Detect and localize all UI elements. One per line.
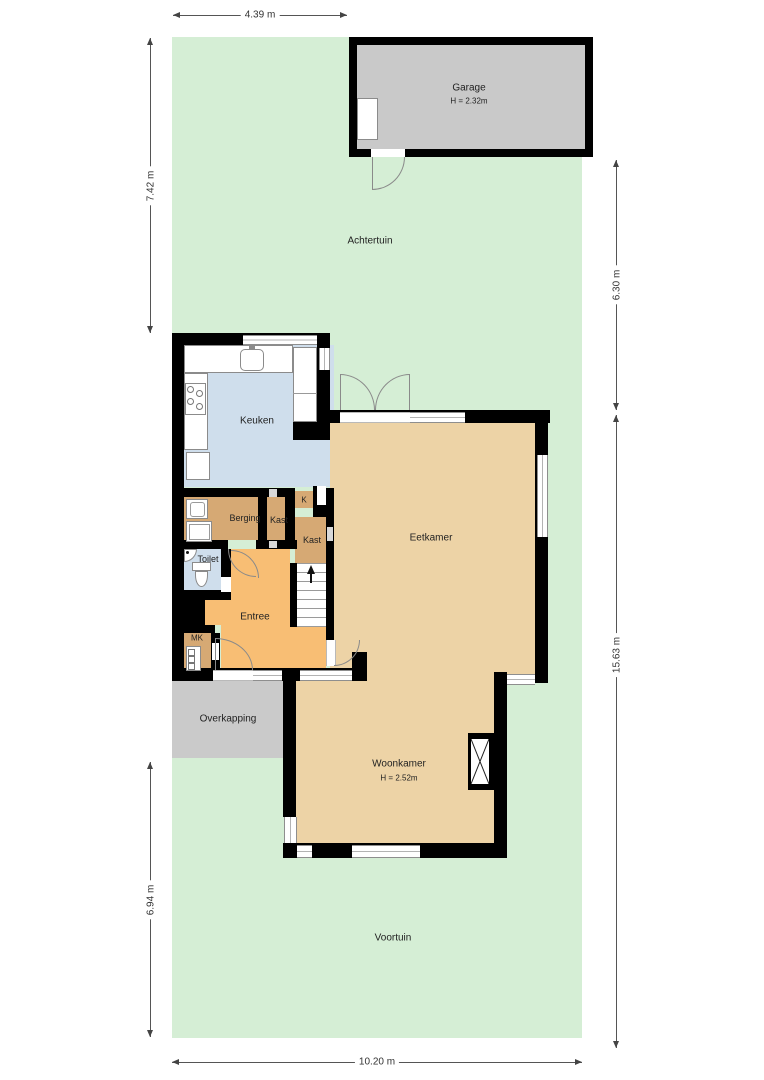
dim-label-bottom: 10.20 m bbox=[355, 1056, 399, 1069]
room-label-woonkamer: Woonkamer bbox=[372, 758, 426, 770]
wall-east-woonkamer bbox=[494, 672, 507, 858]
room-label-kast-trap: Kast bbox=[303, 535, 321, 545]
meter-icon bbox=[188, 649, 195, 656]
stove-burner-icon bbox=[196, 390, 203, 397]
french-door-opening bbox=[340, 412, 410, 423]
kast-trap-door-jamb bbox=[327, 527, 333, 541]
dim-arrow bbox=[147, 38, 153, 45]
garage-door-leaf bbox=[372, 157, 373, 190]
dim-arrow bbox=[340, 12, 347, 18]
window-eetkamer-southeast bbox=[507, 674, 535, 685]
dim-arrow bbox=[613, 1041, 619, 1048]
appliance-box bbox=[186, 452, 210, 480]
stairs-arrow-stem bbox=[310, 573, 312, 583]
garage-door-panel bbox=[357, 98, 378, 140]
dim-arrow bbox=[147, 326, 153, 333]
counter-top bbox=[184, 345, 293, 373]
room-label-entree: Entree bbox=[240, 611, 269, 623]
entree-floor-south bbox=[290, 627, 326, 668]
room-label-berging: Berging bbox=[229, 513, 260, 523]
wall-stairs-west bbox=[290, 563, 297, 627]
fireplace-icon bbox=[471, 739, 489, 784]
wall-west-woonkamer bbox=[283, 672, 296, 817]
garden-label-achtertuin: Achtertuin bbox=[347, 235, 392, 247]
dim-arrow bbox=[173, 12, 180, 18]
room-label-eetkamer: Eetkamer bbox=[410, 532, 453, 544]
wall-mk-north bbox=[183, 625, 215, 633]
window-woonkamer-south-large bbox=[352, 845, 420, 858]
room-label-kast-hal: Kast bbox=[270, 515, 288, 525]
floorplan: Achtertuin Voortuin Overkapping Garage H… bbox=[0, 0, 764, 1080]
wall-east-eetkamer bbox=[535, 410, 548, 683]
dim-arrow bbox=[613, 403, 619, 410]
wall-counter-stub bbox=[293, 422, 317, 440]
room-label-kast-klein: K bbox=[301, 495, 306, 504]
room-label-garage: Garage bbox=[452, 82, 485, 94]
eetkamer-floor bbox=[330, 423, 535, 683]
room-label-keuken: Keuken bbox=[240, 415, 274, 427]
room-height-garage: H = 2.32m bbox=[450, 96, 487, 105]
washing-machine-drum-icon bbox=[189, 524, 210, 540]
window-kitchen-east bbox=[319, 348, 330, 370]
dim-arrow bbox=[613, 415, 619, 422]
counter-right-divider bbox=[293, 393, 317, 394]
room-label-mk: MK bbox=[191, 633, 203, 642]
front-door-leaf bbox=[215, 638, 216, 670]
wall-south-kitchen bbox=[184, 488, 295, 497]
stove-burner-icon bbox=[187, 398, 194, 405]
dim-arrow bbox=[613, 160, 619, 167]
dim-label-left-lower: 6.94 m bbox=[145, 881, 158, 920]
window-woonkamer-west bbox=[284, 817, 297, 843]
basin-tap-icon bbox=[186, 551, 189, 554]
window-woonkamer-south-small bbox=[297, 845, 312, 858]
dim-arrow bbox=[575, 1059, 582, 1065]
window-hal-south bbox=[300, 670, 352, 681]
entree-floor-west bbox=[205, 600, 221, 625]
toilet-door-gap bbox=[221, 577, 231, 592]
dim-arrow bbox=[147, 762, 153, 769]
wall-chunk-west bbox=[183, 600, 205, 625]
meter-icon bbox=[188, 663, 195, 670]
dim-label-left-upper: 7.42 m bbox=[145, 167, 158, 206]
room-height-woonkamer: H = 2.52m bbox=[380, 773, 417, 782]
window-entree-south bbox=[253, 670, 282, 681]
room-label-toilet: Toilet bbox=[197, 554, 218, 564]
dim-line-right-lower bbox=[616, 415, 617, 1048]
dim-label-right-lower: 15.63 m bbox=[611, 633, 624, 677]
stove-burner-icon bbox=[196, 403, 203, 410]
dim-arrow bbox=[147, 1030, 153, 1037]
window-eetkamer-east bbox=[537, 455, 548, 537]
kast-door-jamb-top bbox=[269, 489, 277, 497]
kast-door-jamb-bottom bbox=[269, 541, 277, 548]
french-door-right-leaf bbox=[409, 374, 410, 410]
wall-stairs-east bbox=[326, 488, 334, 640]
garden-label-voortuin: Voortuin bbox=[375, 932, 412, 944]
front-door-opening bbox=[213, 670, 253, 681]
sink-faucet-icon bbox=[249, 345, 255, 350]
meter-icon bbox=[188, 656, 195, 663]
garage-door-opening bbox=[371, 149, 405, 157]
laundry-sink-bowl-icon bbox=[190, 502, 205, 517]
dim-label-right-upper: 6.30 m bbox=[611, 266, 624, 305]
counter-right bbox=[293, 347, 317, 422]
stove-burner-icon bbox=[187, 386, 194, 393]
french-door-left-leaf bbox=[340, 374, 341, 410]
wall-stub-south bbox=[352, 652, 367, 681]
sink-icon bbox=[240, 349, 264, 371]
dim-arrow bbox=[172, 1059, 179, 1065]
window-eetkamer-north bbox=[410, 412, 465, 423]
room-label-overkapping: Overkapping bbox=[200, 713, 257, 725]
k-notch bbox=[317, 486, 326, 505]
dim-label-top: 4.39 m bbox=[241, 9, 280, 22]
window-kitchen-north bbox=[243, 335, 317, 345]
